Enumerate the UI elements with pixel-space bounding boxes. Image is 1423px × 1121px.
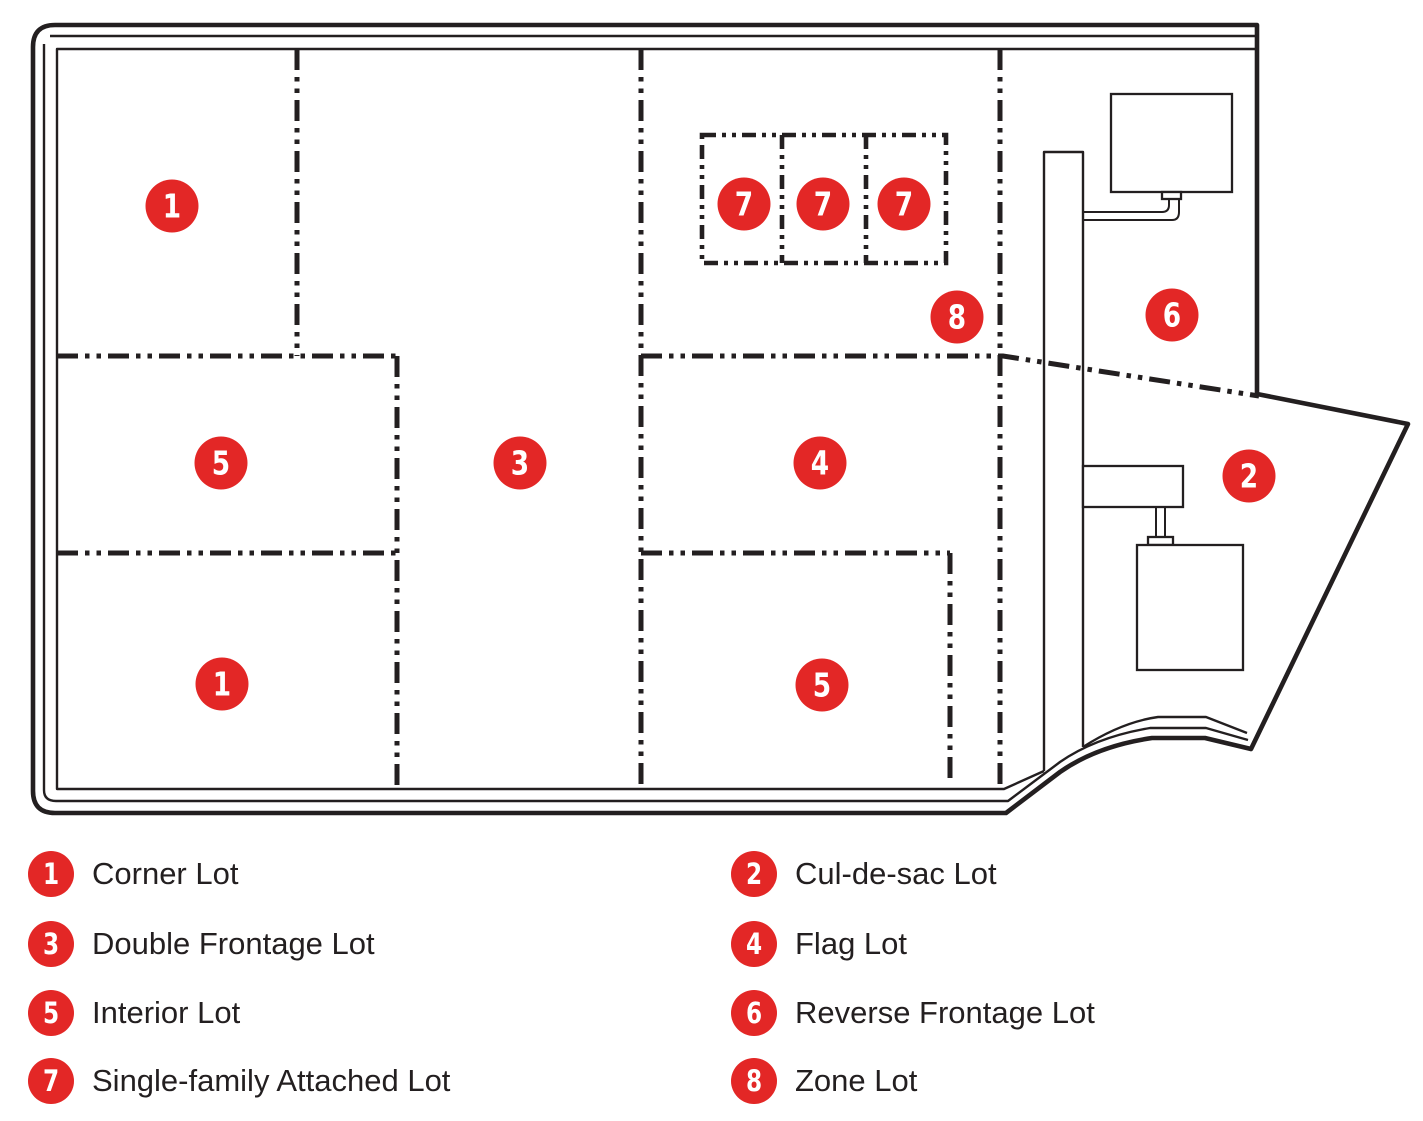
driveway-connector-upper-b [1083,199,1179,220]
marker-number: 8 [948,301,966,334]
marker-number: 7 [895,188,913,221]
legend-item-flag-lot: 4 Flag Lot [731,921,907,967]
marker-number: 1 [163,190,181,223]
legend-badge: 6 [731,990,777,1036]
legend-badge: 5 [28,990,74,1036]
marker-number: 6 [1163,299,1181,332]
map-marker-interior-lot-a: 5 [195,437,248,490]
map-marker-zone-lot: 8 [931,291,984,344]
legend-label: Interior Lot [92,995,240,1031]
legend-badge: 4 [731,921,777,967]
map-marker-corner-lot-a: 1 [146,180,199,233]
legend-badge: 2 [731,851,777,897]
map-marker-corner-lot-b: 1 [196,658,249,711]
driveway-connector-lower [1156,507,1165,538]
legend-item-culdesac-lot: 2 Cul-de-sac Lot [731,851,997,897]
marker-number: 1 [213,668,231,701]
marker-number: 3 [511,447,529,480]
legend-badge: 8 [731,1058,777,1104]
lot-types-diagram: 1 7 7 7 8 6 5 3 4 2 1 5 1 Corner Lot 3 D… [0,0,1423,1121]
map-marker-reverse-frontage-lot: 6 [1146,289,1199,342]
marker-number: 2 [1240,460,1258,493]
legend-badge: 3 [28,921,74,967]
legend-label: Cul-de-sac Lot [795,856,997,892]
legend-label: Zone Lot [795,1063,917,1099]
marker-number: 7 [814,188,832,221]
legend-label: Double Frontage Lot [92,926,375,962]
marker-number: 5 [813,669,831,702]
marker-number: 5 [212,447,230,480]
map-marker-attached-lot-a: 7 [718,178,771,231]
marker-number: 7 [735,188,753,221]
legend-item-zone-lot: 8 Zone Lot [731,1058,917,1104]
building-reverse-frontage-stoop [1162,192,1181,199]
legend-item-double-frontage-lot: 3 Double Frontage Lot [28,921,375,967]
map-marker-interior-lot-b: 5 [796,659,849,712]
map-marker-attached-lot-c: 7 [878,178,931,231]
legend-badge: 7 [28,1058,74,1104]
plat-map [0,0,1423,845]
shared-driveway [1044,152,1083,771]
building-culdesac [1137,545,1243,670]
map-marker-attached-lot-b: 7 [797,178,850,231]
legend-item-corner-lot: 1 Corner Lot [28,851,238,897]
map-marker-flag-lot: 4 [794,437,847,490]
legend-label: Flag Lot [795,926,907,962]
building-culdesac-stoop [1148,537,1173,545]
building-culdesac-wing [1083,466,1183,507]
building-reverse-frontage [1111,94,1232,192]
map-marker-culdesac-lot: 2 [1223,450,1276,503]
legend-item-single-family-attached-lot: 7 Single-family Attached Lot [28,1058,450,1104]
marker-number: 4 [811,447,829,480]
map-marker-double-frontage-lot: 3 [494,437,547,490]
legend-label: Single-family Attached Lot [92,1063,450,1099]
legend-label: Reverse Frontage Lot [795,995,1095,1031]
legend-label: Corner Lot [92,856,238,892]
driveway-connector-upper-a [1083,199,1169,212]
legend-badge: 1 [28,851,74,897]
legend-item-interior-lot: 5 Interior Lot [28,990,240,1036]
lot-line-horizontal-3 [641,356,1259,396]
legend-item-reverse-frontage-lot: 6 Reverse Frontage Lot [731,990,1095,1036]
